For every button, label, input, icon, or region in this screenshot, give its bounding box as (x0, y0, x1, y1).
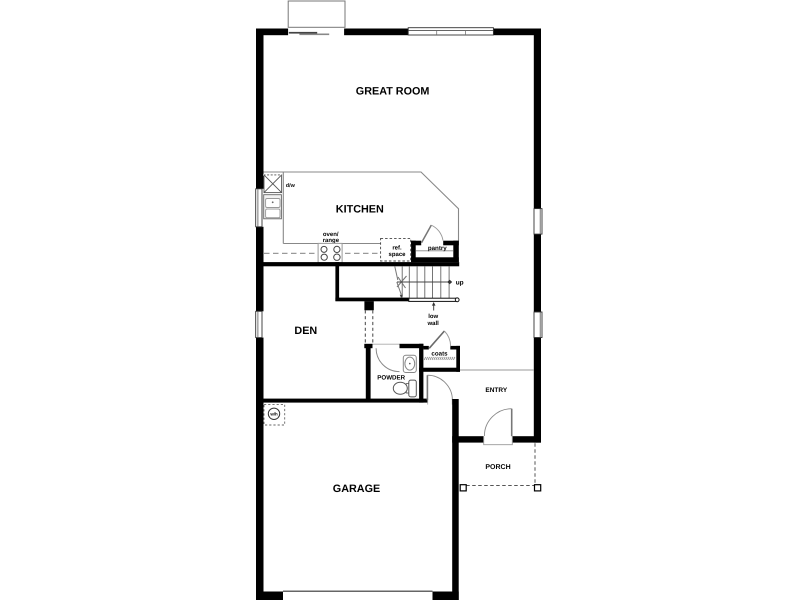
svg-text:oven/: oven/ (323, 231, 339, 238)
svg-text:space: space (388, 252, 406, 258)
svg-text:wall: wall (427, 320, 440, 327)
svg-text:low: low (428, 313, 438, 320)
svg-text:KITCHEN: KITCHEN (336, 204, 384, 216)
svg-text:w/h: w/h (269, 412, 278, 417)
svg-text:POWDER: POWDER (377, 374, 405, 381)
svg-text:GARAGE: GARAGE (333, 483, 380, 495)
svg-text:DEN: DEN (294, 325, 317, 337)
svg-text:up: up (456, 279, 464, 286)
svg-text:pantry: pantry (428, 245, 447, 252)
svg-text:GREAT ROOM: GREAT ROOM (356, 85, 430, 97)
svg-text:ENTRY: ENTRY (485, 387, 507, 394)
svg-text:ref.: ref. (392, 244, 402, 251)
svg-text:d/w: d/w (286, 183, 296, 189)
svg-text:PORCH: PORCH (485, 464, 510, 471)
svg-text:coats: coats (431, 350, 448, 357)
